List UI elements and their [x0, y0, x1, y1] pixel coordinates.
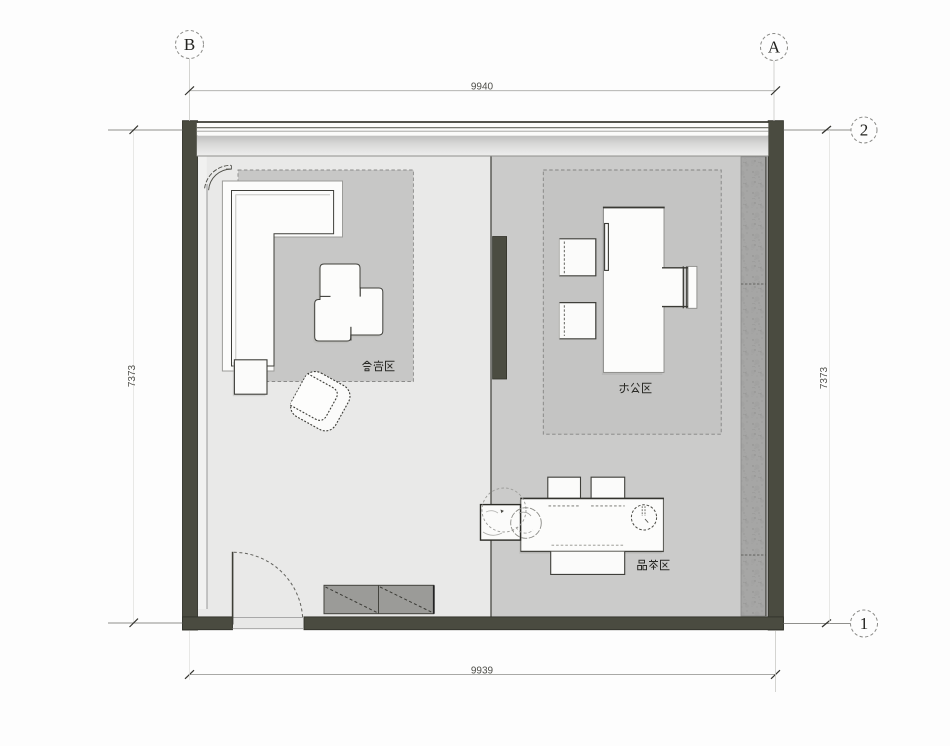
svg-text:9940: 9940 [471, 82, 494, 93]
svg-text:7373: 7373 [819, 366, 830, 389]
svg-text:A: A [768, 38, 781, 57]
svg-text:9939: 9939 [471, 666, 494, 677]
svg-text:2: 2 [860, 121, 869, 140]
svg-text:1: 1 [860, 614, 869, 633]
svg-text:B: B [184, 35, 195, 54]
svg-text:7373: 7373 [127, 364, 138, 387]
